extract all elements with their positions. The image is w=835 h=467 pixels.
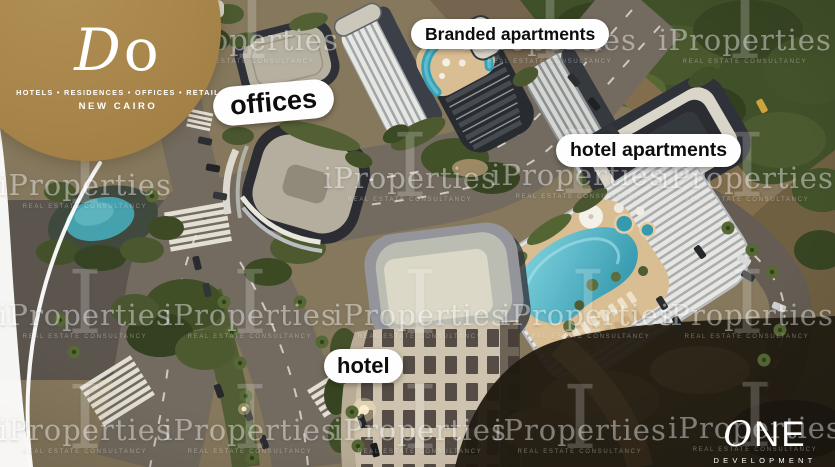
developer-subtitle: DEVELOPMENT [700,456,830,465]
brand-tagline: HOTELS • RESIDENCES • OFFICES • RETAIL [16,88,220,97]
label-hotel: hotel [324,349,403,383]
brand-wordmark: Do [74,21,161,79]
developer-logo: ONE DEVELOPMENT [700,417,830,465]
brand-location: NEW CAIRO [79,101,158,112]
label-hotel-apartments: hotel apartments [556,134,741,167]
marketing-image: I iProperties REAL ESTATE CONSULTANCY I … [0,0,835,467]
label-branded-apartments: Branded apartments [411,19,609,49]
developer-name: ONE [700,417,830,453]
